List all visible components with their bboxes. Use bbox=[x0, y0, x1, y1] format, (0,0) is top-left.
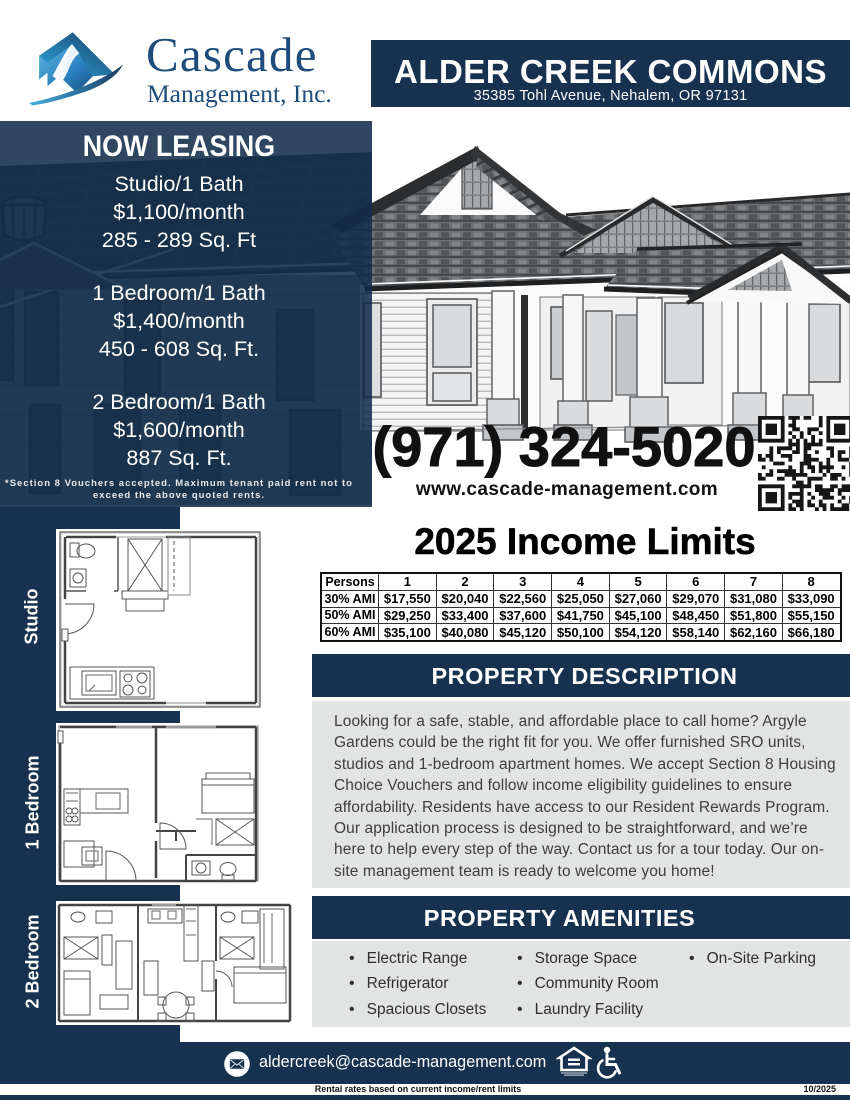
svg-text:Management, Inc.: Management, Inc. bbox=[147, 79, 332, 108]
svg-text:Cascade: Cascade bbox=[146, 27, 318, 82]
